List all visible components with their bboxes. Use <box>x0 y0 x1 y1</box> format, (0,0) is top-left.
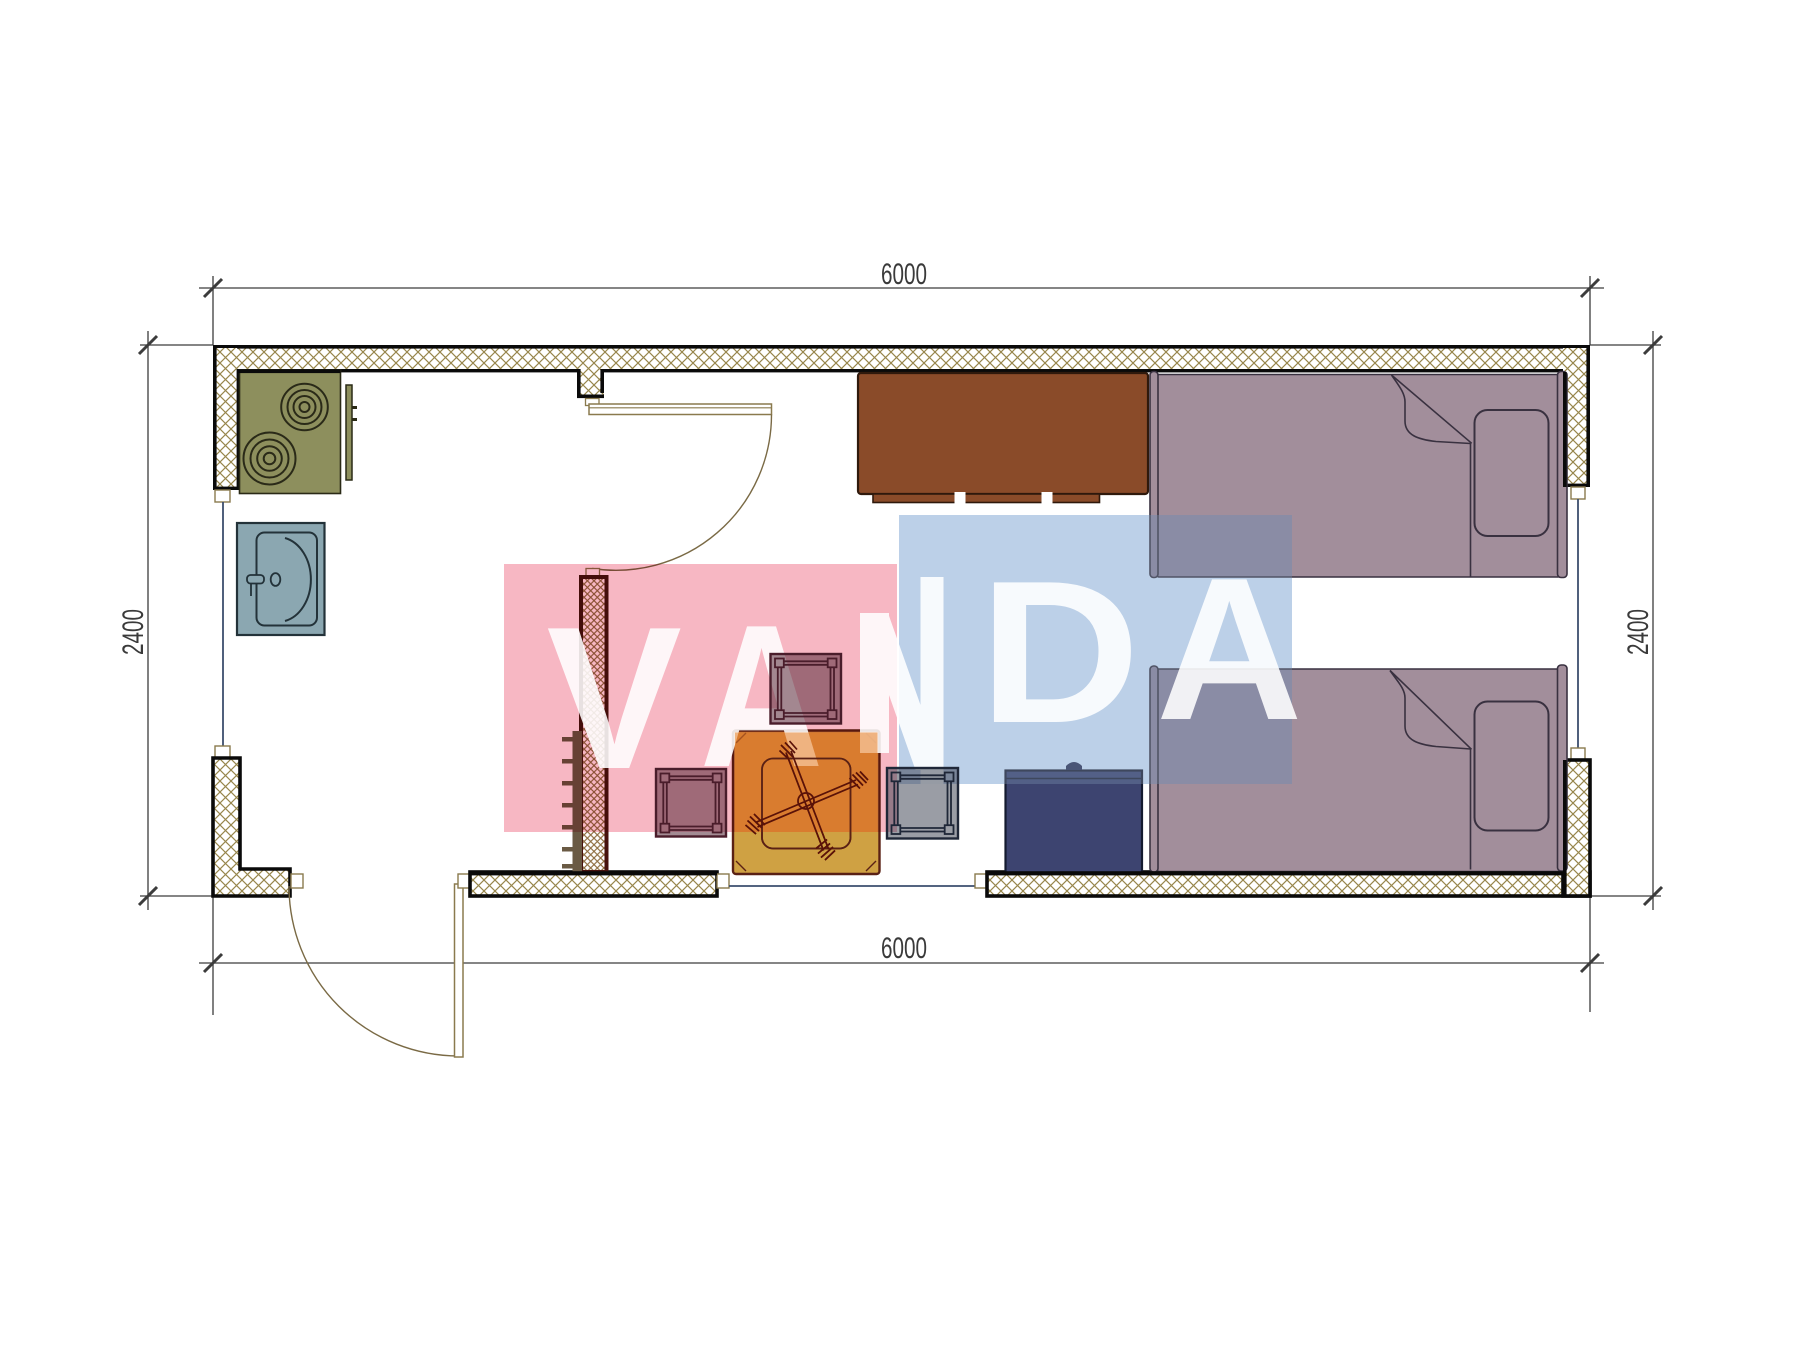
svg-text:6000: 6000 <box>881 933 927 965</box>
svg-text:A: A <box>1156 536 1303 763</box>
svg-text:2400: 2400 <box>1623 609 1655 655</box>
svg-text:2400: 2400 <box>118 609 150 655</box>
svg-text:6000: 6000 <box>881 259 927 291</box>
svg-text:D: D <box>979 539 1140 765</box>
